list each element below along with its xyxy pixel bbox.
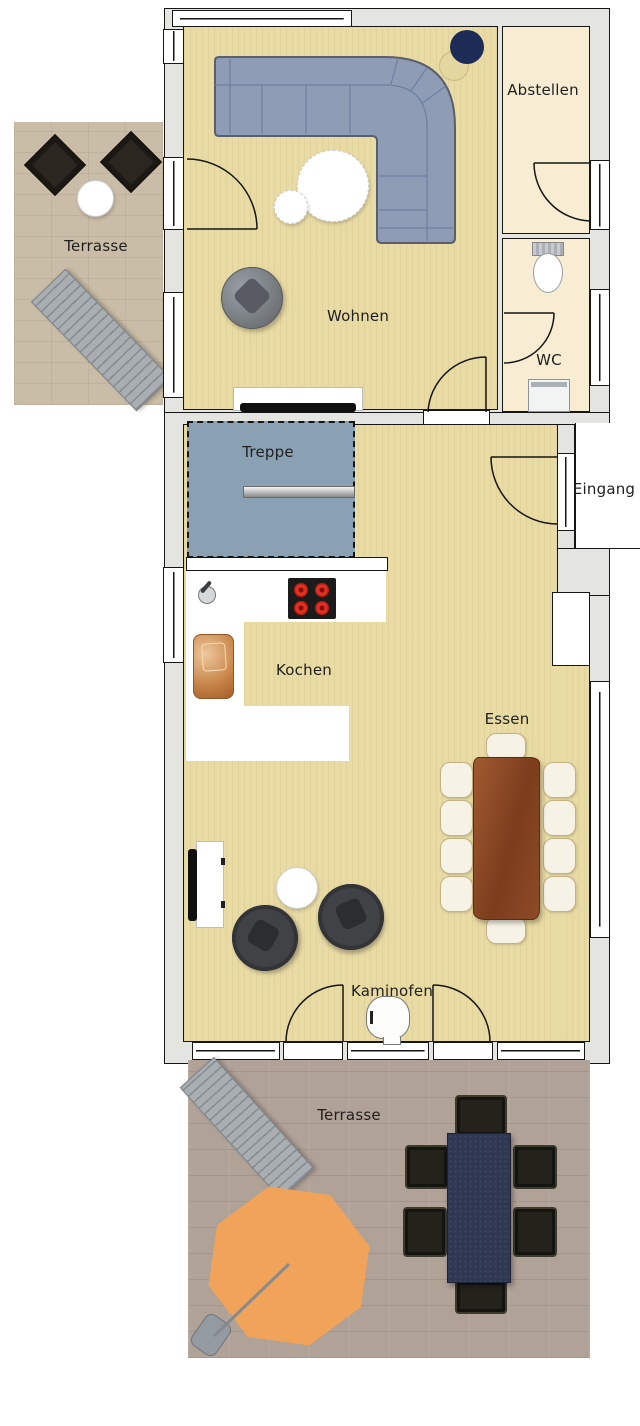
tv-lowboard-dining xyxy=(196,841,224,928)
side-table xyxy=(276,867,318,909)
window-dining-right xyxy=(590,681,610,938)
dining-chair xyxy=(440,762,473,798)
copper-item-detail xyxy=(201,642,227,672)
cooktop xyxy=(288,578,336,619)
label-essen: Essen xyxy=(485,710,530,728)
terrace-door-frame xyxy=(163,157,184,230)
sink-edge xyxy=(531,382,567,387)
wohnen-doorway xyxy=(423,410,490,425)
wood-stove xyxy=(366,996,410,1039)
entry-wardrobe xyxy=(552,592,590,666)
coffee-table-small xyxy=(274,190,308,224)
floor-plan: Terrasse Wohnen Abstellen WC Treppe Eing… xyxy=(0,0,640,1426)
burner-icon xyxy=(315,583,329,597)
toilet-bowl xyxy=(533,253,563,293)
burner-icon xyxy=(315,601,329,615)
swivel-seat xyxy=(334,897,369,932)
burner-icon xyxy=(294,583,308,597)
outdoor-chair xyxy=(403,1207,447,1257)
dining-chair xyxy=(543,876,576,912)
tv-dining xyxy=(188,849,197,921)
dining-chair xyxy=(440,876,473,912)
outdoor-chair xyxy=(455,1280,507,1314)
window-wc-right xyxy=(590,289,610,386)
window-wohnen-left-2 xyxy=(163,292,184,398)
dining-chair xyxy=(486,916,526,944)
lowboard-foot xyxy=(221,901,225,908)
lounge-armchair xyxy=(221,267,283,329)
dining-chair xyxy=(543,800,576,836)
label-abstellen: Abstellen xyxy=(507,81,579,99)
dining-table xyxy=(473,757,540,920)
stairs-knee-wall xyxy=(186,557,388,571)
floor-lamp-icon xyxy=(450,30,484,64)
outdoor-chair xyxy=(513,1207,557,1257)
outdoor-chair xyxy=(513,1145,557,1189)
wc-sink xyxy=(528,379,570,412)
dining-chair xyxy=(543,762,576,798)
label-terrasse-bottom: Terrasse xyxy=(317,1106,381,1124)
window-bottom-1 xyxy=(192,1042,280,1060)
terrace-top-table xyxy=(77,180,114,217)
burner-icon xyxy=(294,601,308,615)
stairs-handrail xyxy=(243,486,355,498)
outdoor-chair xyxy=(455,1095,507,1137)
tv-wohnen xyxy=(240,403,356,412)
swivel-seat xyxy=(245,918,281,954)
outdoor-dining-table xyxy=(447,1133,511,1283)
window-wohnen-left-1 xyxy=(163,29,184,64)
terrace-door-right-frame xyxy=(433,1042,493,1060)
label-treppe: Treppe xyxy=(242,443,294,461)
wall-entrance-block xyxy=(557,548,610,596)
outdoor-chair xyxy=(405,1145,449,1189)
stove-handle xyxy=(370,1011,373,1024)
window-kitchen-left xyxy=(163,567,184,663)
dining-chair xyxy=(440,800,473,836)
kitchen-counter-bottom xyxy=(186,706,349,761)
abstellen-door-frame xyxy=(590,160,610,230)
armchair-seat xyxy=(232,276,272,316)
label-kochen: Kochen xyxy=(276,661,332,679)
label-terrasse-top: Terrasse xyxy=(64,237,128,255)
window-top xyxy=(172,10,352,27)
lowboard-foot xyxy=(221,858,225,865)
wall-above-entrance-door xyxy=(557,424,575,454)
label-wohnen: Wohnen xyxy=(327,307,389,325)
terrace-door-left-frame xyxy=(283,1042,343,1060)
label-wc: WC xyxy=(536,351,562,369)
dining-chair xyxy=(543,838,576,874)
coffee-table-large xyxy=(297,150,369,222)
dining-chair xyxy=(440,838,473,874)
kitchen-copper-item xyxy=(193,634,234,699)
window-bottom-3 xyxy=(497,1042,585,1060)
label-kaminofen: Kaminofen xyxy=(351,982,433,1000)
room-abstellen xyxy=(502,26,590,234)
stove-flue xyxy=(383,1037,401,1045)
wall-below-entrance-door xyxy=(557,530,575,550)
label-eingang: Eingang xyxy=(573,480,635,498)
